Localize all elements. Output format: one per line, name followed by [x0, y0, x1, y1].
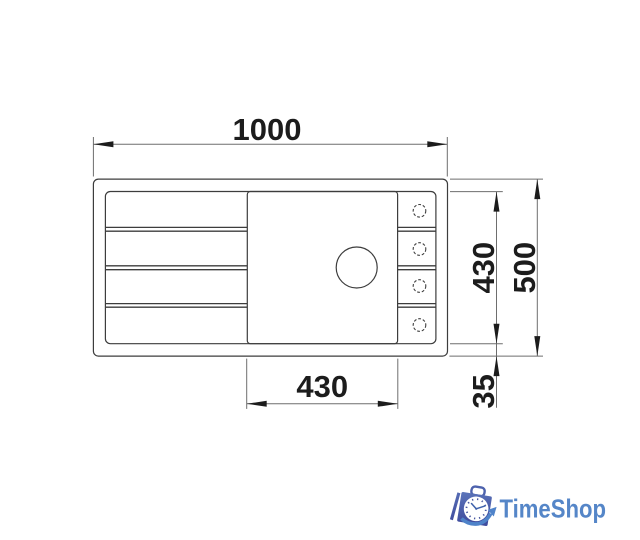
svg-text:1000: 1000 [233, 112, 302, 147]
svg-text:TimeShop: TimeShop [500, 494, 607, 524]
svg-text:430: 430 [296, 369, 348, 404]
svg-text:35: 35 [466, 374, 501, 408]
svg-text:500: 500 [507, 242, 542, 294]
svg-text:430: 430 [466, 242, 501, 294]
